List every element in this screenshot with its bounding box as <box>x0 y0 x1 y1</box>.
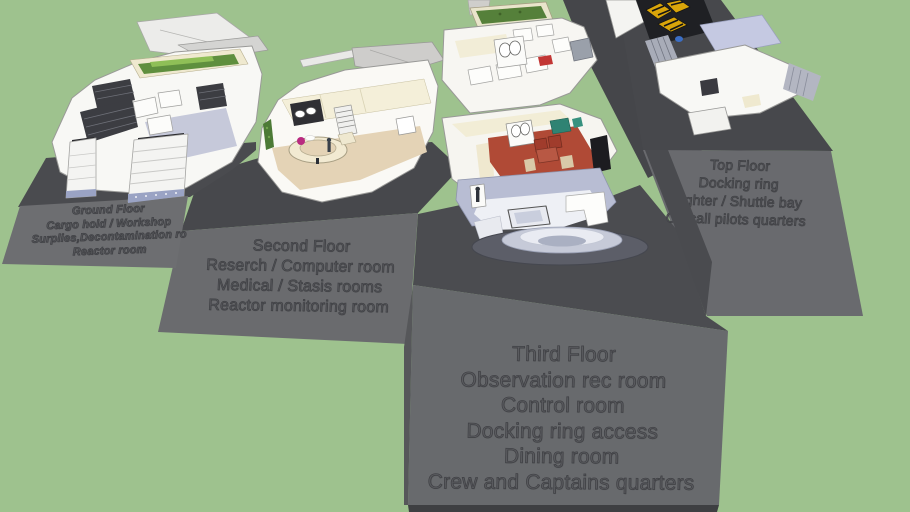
second-floor-label: Second Floor Reserch / Computer room Med… <box>188 235 412 318</box>
third-floor-label: Third Floor Observation rec room Control… <box>403 341 721 496</box>
top-floor-label: Top Floor Docking ring Fighter / Shuttle… <box>635 153 841 230</box>
label-line: Crew and Captains quarters <box>403 469 719 496</box>
label-line: Observation rec room <box>406 367 722 394</box>
human-figure <box>475 187 480 202</box>
stasis-pod <box>295 110 305 117</box>
label-line: Reactor monitoring room <box>188 295 409 318</box>
label-line: Third Floor <box>406 341 722 368</box>
ground-floor-label: Ground Floor Cargo hold / Workshop Surpl… <box>29 201 189 264</box>
cargo-ramp <box>66 138 96 198</box>
label-line: Dining room <box>404 443 720 470</box>
label-line: Control room <box>405 392 721 419</box>
3d-model-viewport[interactable]: Ground Floor Cargo hold / Workshop Surpl… <box>0 0 910 512</box>
cargo-ramp <box>128 134 188 203</box>
stasis-pod <box>306 107 316 114</box>
label-line: Docking ring access <box>404 418 720 445</box>
